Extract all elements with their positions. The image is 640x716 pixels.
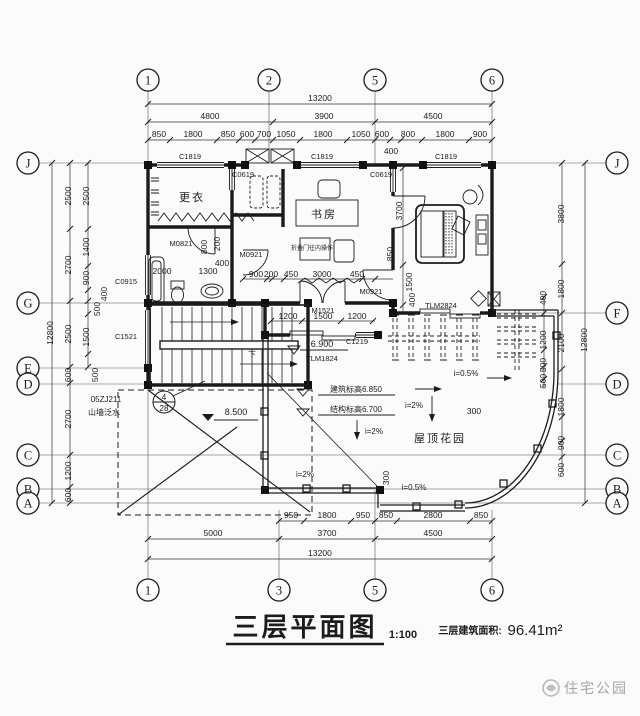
dims-bottom: 950 1800 950 850 2800 850 5000 3700 4500… — [204, 510, 489, 558]
axis-right-f: F — [614, 307, 621, 321]
dim-door-row: 1200 — [348, 311, 367, 321]
axis-bottom-6: 6 — [489, 584, 495, 598]
dim-bath: 2000 — [153, 266, 172, 276]
door-label-tlm1824: TLM1824 — [306, 354, 338, 363]
dim-left-mid: 2700 — [63, 255, 73, 274]
dim-bath: 400 — [215, 258, 229, 268]
axis-left-b: B — [24, 483, 32, 497]
axis-right-a: A — [612, 497, 621, 511]
window-label-c0619: C0619 — [232, 170, 254, 179]
windows — [144, 149, 481, 366]
stair-down-label: 下 — [248, 350, 256, 359]
dim-bottom-seg: 950 — [356, 510, 370, 520]
dim-top-seg: 850 — [152, 129, 166, 139]
dim-left-inner: 500 — [92, 302, 102, 316]
axis-right-d: D — [612, 378, 621, 392]
dim-bottom-bay: 3700 — [318, 528, 337, 538]
slope-label: i=2% — [365, 427, 383, 436]
dim-top-seg: 1800 — [314, 129, 333, 139]
elevation-build: 建筑标高6.850 — [330, 384, 383, 394]
dim-left-inner: 2500 — [81, 186, 91, 205]
dim-bottom-seg: 1800 — [318, 510, 337, 520]
detail-name: 山墙泛水 — [88, 407, 120, 417]
axis-right-b: B — [613, 483, 621, 497]
watermark-text: 住宅公园 — [564, 680, 628, 696]
dim-hall: 200 — [264, 269, 278, 279]
dim-bedroom: 3700 — [394, 201, 404, 220]
dim-left-inner: 1400 — [81, 237, 91, 256]
dim-left-mid: 2500 — [63, 186, 73, 205]
elevation-roof: 8.500 — [225, 407, 248, 417]
dim-top-bay: 4800 — [201, 111, 220, 121]
area-label: 三层建筑面积: — [438, 624, 501, 637]
door-label-m1521: M1521 — [312, 306, 335, 315]
axis-top-5: 5 — [372, 74, 378, 88]
area-value: 96.41m² — [507, 622, 562, 639]
dim-left-inner: 400 — [99, 287, 109, 301]
door-label-m0921: M0921 — [360, 287, 383, 296]
dim-hall: 450 — [284, 269, 298, 279]
door-label-m0821: M0821 — [170, 239, 193, 248]
room-label-study: 书房 — [311, 208, 337, 221]
dim-top-bay: 4500 — [424, 111, 443, 121]
dim-top-seg: 700 — [257, 129, 271, 139]
window-label-c0619: C0619 — [370, 170, 392, 179]
slope-label: i=2% — [405, 401, 423, 410]
dim-bottom-overall: 13200 — [308, 548, 332, 558]
dim-top-seg: 600 — [375, 129, 389, 139]
dim-top-seg: 1050 — [277, 129, 296, 139]
dim-bottom-bay: 5000 — [204, 528, 223, 538]
dim-bedroom: 1500 — [404, 272, 414, 291]
axis-bottom-1: 1 — [145, 584, 151, 598]
hip-roof — [118, 390, 312, 515]
dim-top-bay: 3900 — [315, 111, 334, 121]
axis-left-e: E — [24, 362, 32, 376]
dim-bottom-bay: 4500 — [424, 528, 443, 538]
dim-bottom-seg: 850 — [474, 510, 488, 520]
slope-label: i=0.5% — [454, 369, 479, 378]
axis-left-c: C — [24, 449, 32, 463]
axis-right-c: C — [613, 449, 621, 463]
detail-page: 28 — [160, 404, 169, 413]
dim-door-row: 1200 — [279, 311, 298, 321]
dim-bedroom: 400 — [407, 293, 417, 307]
dim-right-inner: 400 — [538, 291, 548, 305]
dim-left-mid: 600 — [63, 488, 73, 502]
dim-hall: 450 — [350, 269, 364, 279]
dim-top-seg: 1800 — [184, 129, 203, 139]
dim-bottom-seg: 2800 — [424, 510, 443, 520]
pergola-right — [497, 310, 538, 371]
watermark: 住宅公园 — [543, 680, 628, 696]
axis-left-g: G — [23, 297, 32, 311]
detail-number: 4 — [162, 393, 167, 402]
dim-bottom-seg: 850 — [379, 510, 393, 520]
dim-right-mid: 1800 — [556, 279, 566, 298]
dim-top-seg: 900 — [473, 129, 487, 139]
dim-left-mid: 600 — [63, 368, 73, 382]
axis-top-1: 1 — [145, 74, 151, 88]
floor-plan-sheet: 1 2 5 6 1 3 5 6 J G E D C B A J F D C B … — [0, 0, 640, 716]
dim-right-overall: 12800 — [579, 328, 589, 352]
dim-bedroom: 850 — [385, 247, 395, 261]
dim-top-sub: 400 — [384, 146, 398, 156]
study-note: 折叠门往内操作 — [291, 244, 333, 252]
room-label-roof-garden: 屋顶花园 — [414, 432, 466, 445]
dim-top-overall: 13200 — [308, 93, 332, 103]
dim-garden: 300 — [381, 471, 391, 485]
slope-label: i=2% — [296, 470, 314, 479]
dim-top-seg: 600 — [240, 129, 254, 139]
dim-top-seg: 800 — [401, 129, 415, 139]
dim-bath: 800 — [199, 240, 209, 254]
slope-label: i=0.5% — [402, 483, 427, 492]
dim-right-mid: 3800 — [556, 204, 566, 223]
dim-garden: 300 — [467, 406, 481, 416]
dim-right-inner: 500 — [538, 358, 548, 372]
dim-left-overall: 12800 — [45, 321, 55, 345]
dim-right-mid: 600 — [556, 463, 566, 477]
window-label-c1819: C1819 — [435, 152, 457, 161]
axis-top-6: 6 — [489, 74, 495, 88]
dim-left-mid: 1200 — [63, 461, 73, 480]
dim-top-seg: 1050 — [352, 129, 371, 139]
dim-left-inner: 1500 — [81, 327, 91, 346]
axis-top-2: 2 — [266, 74, 272, 88]
title-block: 三层平面图 1:100 三层建筑面积: 96.41m² — [226, 612, 563, 644]
dim-bottom-seg: 950 — [284, 510, 298, 520]
axis-bottom-5: 5 — [372, 584, 378, 598]
dim-right-mid: 900 — [556, 436, 566, 450]
dim-top-seg: 850 — [221, 129, 235, 139]
window-label-c1219: C1219 — [346, 337, 368, 346]
window-label-c1521: C1521 — [115, 332, 137, 341]
dim-hall: 3000 — [313, 269, 332, 279]
window-label-c1819: C1819 — [311, 152, 333, 161]
drawing-title: 三层平面图 — [232, 612, 377, 642]
axis-bottom-3: 3 — [276, 584, 282, 598]
axis-right-j: J — [615, 157, 620, 171]
elevation-struct: 结构标高6.700 — [330, 404, 383, 414]
dim-left-inner: 900 — [81, 271, 91, 285]
axis-left-j: J — [26, 157, 31, 171]
dims-top: 13200 4800 3900 4500 850 1800 850 600 70… — [152, 93, 487, 161]
axis-left-d: D — [23, 378, 32, 392]
dim-hall: 900 — [249, 269, 263, 279]
pergola-left — [388, 315, 480, 360]
drawing-scale: 1:100 — [389, 629, 417, 641]
window-label-c0915: C0915 — [115, 277, 137, 286]
door-label-m0921: M0921 — [240, 250, 263, 259]
door-label-tlm2824: TLM2824 — [425, 301, 457, 310]
dim-right-mid: 2100 — [556, 333, 566, 352]
dim-right-mid: 1800 — [556, 397, 566, 416]
dim-left-mid: 2700 — [63, 409, 73, 428]
window-label-c1819: C1819 — [179, 152, 201, 161]
dims-right: 12800 3800 1800 2100 1800 900 600 400 12… — [538, 204, 589, 477]
detail-code: 05ZJ211 — [91, 395, 122, 404]
elevation-terrace: 6.900 — [311, 339, 334, 349]
dim-bath: 200 — [212, 237, 222, 251]
room-label-dressing: 更衣 — [179, 190, 205, 204]
dim-left-mid: 2500 — [63, 324, 73, 343]
dim-right-inner: 500 — [538, 374, 548, 388]
dim-top-seg: 1800 — [436, 129, 455, 139]
dim-right-inner: 1200 — [538, 330, 548, 349]
dim-left-inner: 500 — [90, 368, 100, 382]
axis-left-a: A — [23, 497, 32, 511]
